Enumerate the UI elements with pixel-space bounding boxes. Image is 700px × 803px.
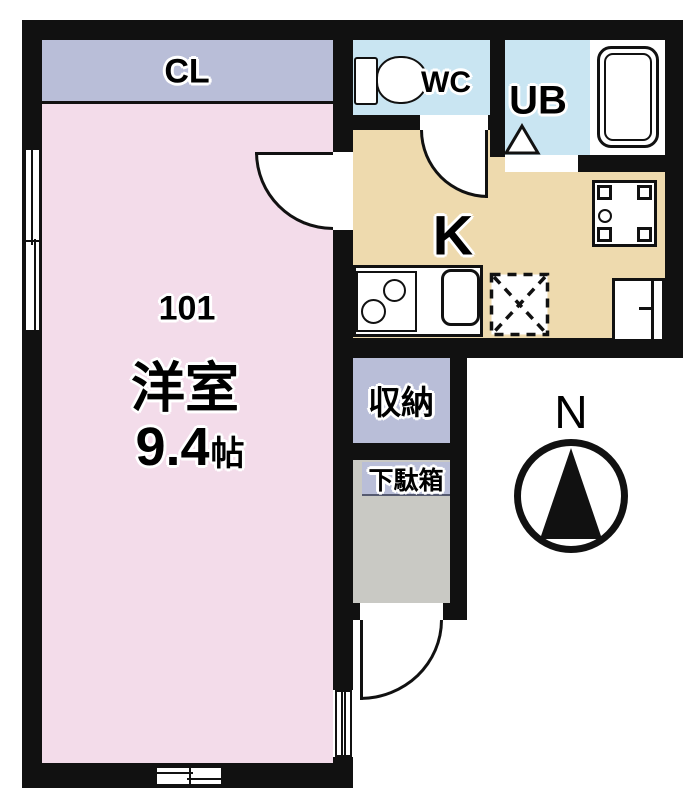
main-room-size-value: 9.4	[135, 417, 210, 477]
wall-window-stub	[333, 757, 353, 765]
closet-label: CL	[164, 53, 209, 92]
wall-left	[22, 20, 42, 788]
wall-storage-bottom	[333, 443, 450, 460]
shoe-cabinet-label: 下駄箱	[368, 461, 443, 497]
compass-icon	[514, 439, 628, 553]
wall-mid-upper	[333, 40, 353, 152]
stove-icon	[356, 271, 417, 332]
side-counter-icon	[612, 278, 665, 342]
main-room-size-unit: 帖	[211, 435, 245, 473]
north-arrow-icon	[521, 446, 621, 546]
wall-entrance-left	[333, 460, 353, 603]
unit-bath-label: UB	[509, 79, 567, 124]
unit-number-label: 101	[159, 290, 216, 329]
wall-right-upper	[665, 20, 683, 358]
kitchen-label: K	[433, 203, 473, 268]
sink-icon	[441, 269, 480, 326]
ub-door-opening	[505, 155, 578, 172]
wc-label: WC	[421, 66, 471, 100]
washer-pan-icon	[592, 180, 657, 247]
bath-step-icon	[502, 123, 542, 156]
floorplan: CL WC UB K 101 洋室 9.4帖 収納 下駄箱 N	[0, 0, 700, 803]
bathtub-icon	[597, 46, 659, 148]
wall-top	[22, 20, 683, 40]
wall-mid-lower	[333, 230, 353, 338]
main-room-size-label: 9.4帖	[135, 416, 244, 478]
refrigerator-space-icon	[489, 272, 550, 337]
wall-storage-left	[333, 358, 353, 443]
entrance-door-swing	[360, 620, 443, 700]
entrance-door-opening	[360, 603, 443, 620]
window-lower-right	[335, 690, 352, 757]
window-bottom	[155, 766, 223, 786]
compass-north-label: N	[554, 385, 587, 439]
window-left	[24, 148, 41, 332]
storage-label: 収納	[368, 376, 434, 424]
main-room-label: 洋室	[131, 344, 239, 423]
wall-column-right	[450, 358, 467, 620]
wall-below-door	[333, 620, 353, 690]
wc-door-opening	[420, 115, 488, 130]
